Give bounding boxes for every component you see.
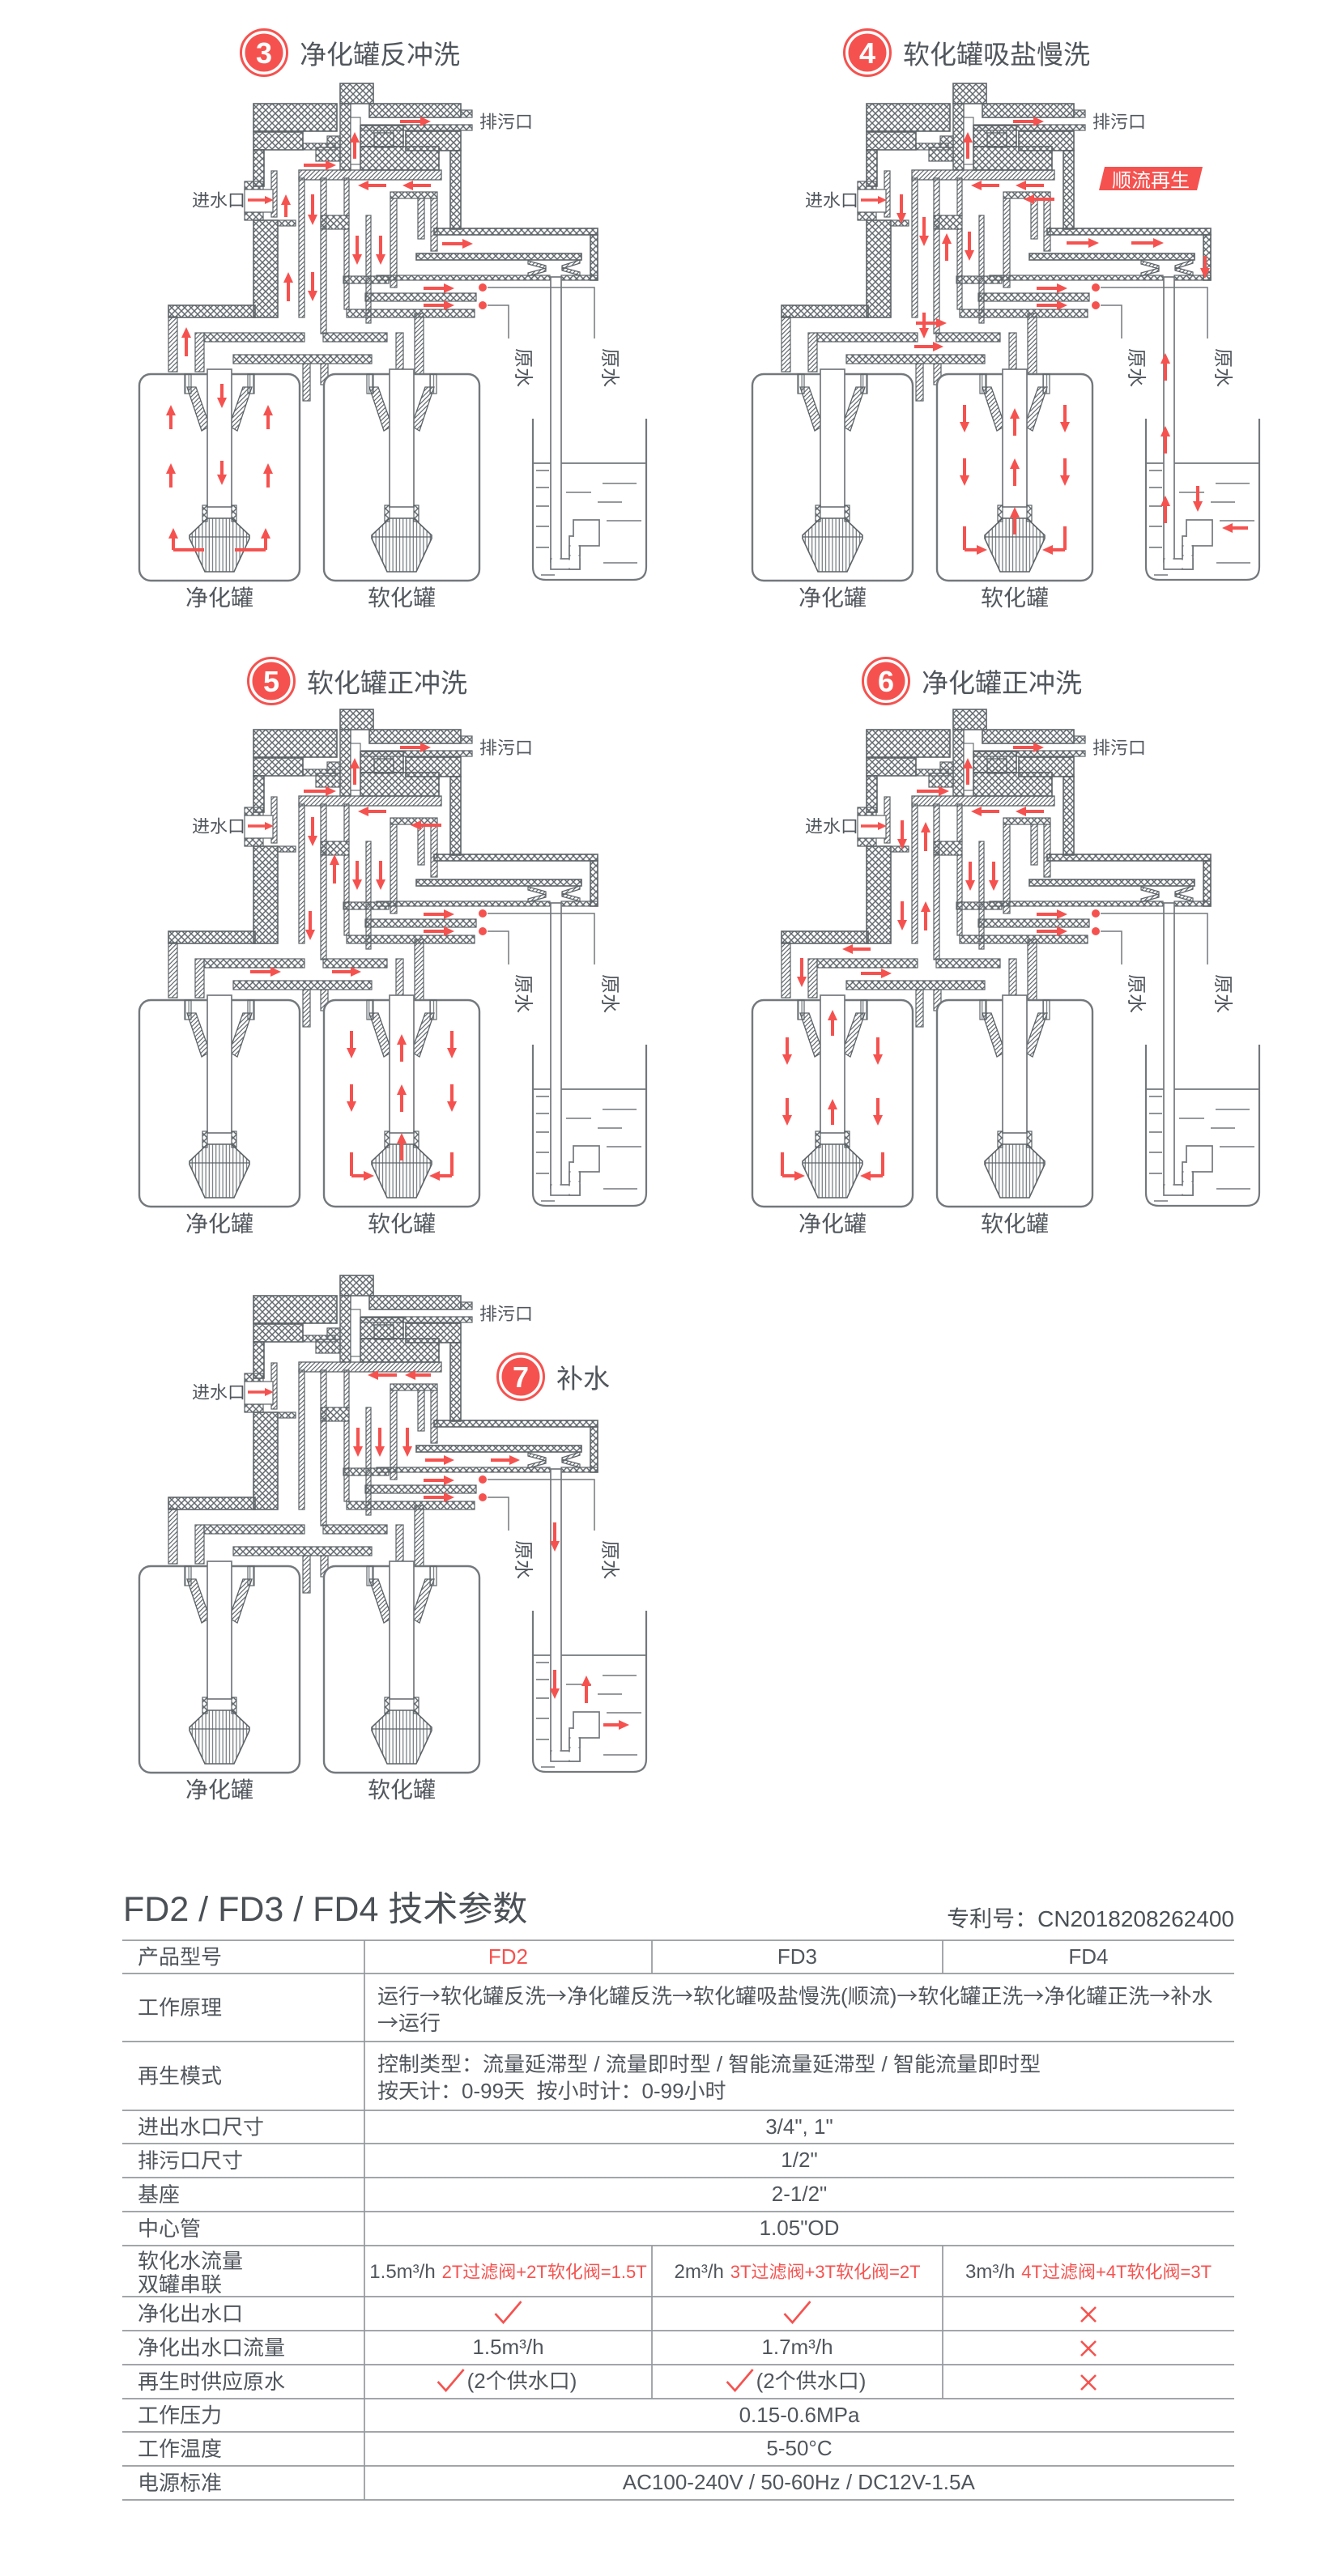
svg-text:+4T: +4T — [1096, 2262, 1127, 2282]
svg-text:1.05"OD: 1.05"OD — [760, 2216, 840, 2240]
svg-text:0.15-0.6MPa: 0.15-0.6MPa — [739, 2403, 860, 2427]
svg-text:0-99: 0-99 — [462, 2079, 504, 2103]
svg-text:AC100-240V / 50-60Hz / DC12V-1: AC100-240V / 50-60Hz / DC12V-1.5A — [623, 2470, 976, 2494]
svg-text:): ) — [859, 2369, 867, 2393]
svg-text:2-1/2": 2-1/2" — [772, 2182, 828, 2206]
svg-text:5-50°C: 5-50°C — [766, 2436, 832, 2460]
svg-text:=3T: =3T — [1181, 2262, 1212, 2282]
svg-text:6: 6 — [878, 665, 894, 698]
svg-text:FD2: FD2 — [488, 1944, 528, 1969]
svg-text:1.7m³/h: 1.7m³/h — [761, 2335, 833, 2359]
svg-text:FD3: FD3 — [777, 1944, 817, 1969]
svg-text:+2T: +2T — [516, 2262, 547, 2282]
svg-text:/: / — [875, 2052, 893, 2076]
svg-text:3: 3 — [256, 36, 272, 70]
svg-text:=2T: =2T — [889, 2262, 921, 2282]
svg-text:+3T: +3T — [805, 2262, 837, 2282]
svg-text:FD2 / FD3 / FD4: FD2 / FD3 / FD4 — [123, 1890, 388, 1929]
svg-text:4T: 4T — [1021, 2262, 1042, 2282]
svg-text:3T: 3T — [730, 2262, 752, 2282]
svg-text:=1.5T: =1.5T — [601, 2262, 647, 2282]
svg-text:): ) — [890, 1984, 897, 2008]
svg-text:/: / — [711, 2052, 729, 2076]
svg-text:1/2": 1/2" — [781, 2148, 817, 2172]
svg-text:3m³/h: 3m³/h — [965, 2261, 1015, 2283]
svg-text:CN2018208262400: CN2018208262400 — [1037, 1906, 1234, 1931]
svg-text:): ) — [570, 2369, 577, 2393]
svg-text:1.5m³/h: 1.5m³/h — [369, 2261, 435, 2283]
svg-text:7: 7 — [513, 1360, 529, 1394]
svg-text:5: 5 — [263, 665, 279, 698]
svg-text:2T: 2T — [442, 2262, 463, 2282]
svg-text:1.5m³/h: 1.5m³/h — [472, 2335, 543, 2359]
svg-text:4: 4 — [859, 36, 875, 70]
svg-text:(: ( — [841, 1984, 848, 2008]
svg-text:FD4: FD4 — [1068, 1944, 1108, 1969]
svg-text:3/4", 1": 3/4", 1" — [765, 2114, 833, 2139]
svg-text:(2: (2 — [756, 2369, 775, 2393]
svg-text:(2: (2 — [467, 2369, 486, 2393]
svg-text:0-99: 0-99 — [642, 2079, 684, 2103]
svg-text:/: / — [588, 2052, 606, 2076]
svg-text:2m³/h: 2m³/h — [675, 2261, 724, 2283]
